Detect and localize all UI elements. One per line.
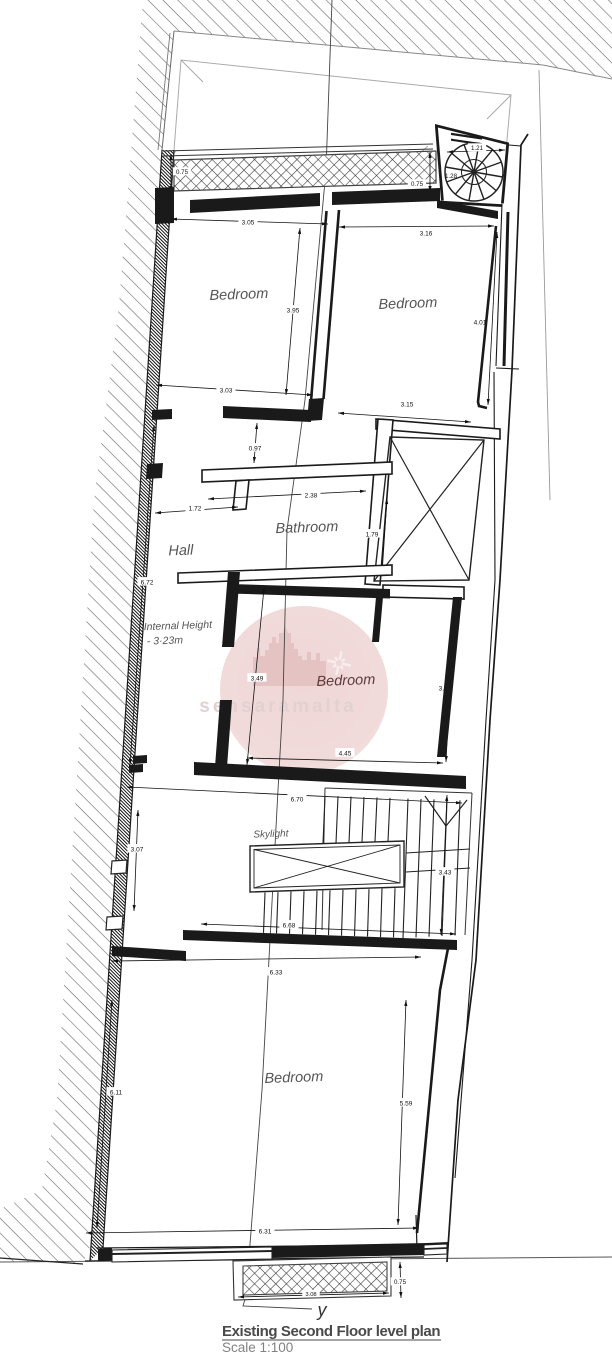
svg-text:Bedroom: Bedroom — [316, 672, 375, 690]
svg-text:Scale 1:100: Scale 1:100 — [222, 1340, 293, 1355]
svg-text:0.75: 0.75 — [176, 169, 189, 176]
svg-text:1.79: 1.79 — [366, 531, 379, 538]
svg-text:4.45: 4.45 — [339, 750, 352, 757]
svg-text:6.72: 6.72 — [141, 579, 154, 586]
svg-text:1.28: 1.28 — [445, 173, 458, 180]
svg-text:0.97: 0.97 — [249, 445, 262, 452]
svg-text:6.33: 6.33 — [270, 969, 283, 976]
svg-text:3.43: 3.43 — [439, 869, 452, 876]
svg-text:3.49: 3.49 — [251, 675, 264, 682]
svg-text:Bathroom: Bathroom — [275, 519, 338, 537]
svg-text:3.15: 3.15 — [401, 401, 414, 408]
svg-text:1.72: 1.72 — [189, 505, 202, 512]
svg-text:Bedroom: Bedroom — [378, 295, 437, 313]
svg-text:6.11: 6.11 — [110, 1089, 123, 1096]
svg-text:- 3·23m: - 3·23m — [147, 634, 184, 647]
svg-text:Internal Height: Internal Height — [144, 619, 214, 633]
svg-text:3.95: 3.95 — [287, 307, 300, 314]
svg-text:Bedroom: Bedroom — [209, 286, 268, 304]
svg-text:Bedroom: Bedroom — [264, 1069, 323, 1087]
svg-text:0.75: 0.75 — [411, 181, 424, 188]
svg-text:1.21: 1.21 — [471, 145, 484, 152]
svg-text:0.75: 0.75 — [394, 1279, 407, 1286]
svg-text:3.07: 3.07 — [131, 846, 144, 853]
svg-text:6.68: 6.68 — [283, 922, 296, 929]
svg-text:6.70: 6.70 — [291, 796, 304, 803]
svg-text:3.08: 3.08 — [305, 1292, 316, 1298]
svg-text:5.59: 5.59 — [400, 1100, 413, 1107]
svg-text:2.38: 2.38 — [305, 492, 318, 499]
svg-text:3.16: 3.16 — [420, 230, 433, 237]
svg-text:3.05: 3.05 — [242, 219, 255, 226]
svg-text:6.31: 6.31 — [259, 1228, 272, 1235]
svg-text:y: y — [316, 1300, 328, 1320]
svg-text:Skylight: Skylight — [253, 828, 290, 840]
svg-text:Hall: Hall — [168, 543, 194, 560]
svg-text:3.03: 3.03 — [220, 387, 233, 394]
svg-text:Existing Second Floor level pl: Existing Second Floor level plan — [222, 1323, 440, 1340]
